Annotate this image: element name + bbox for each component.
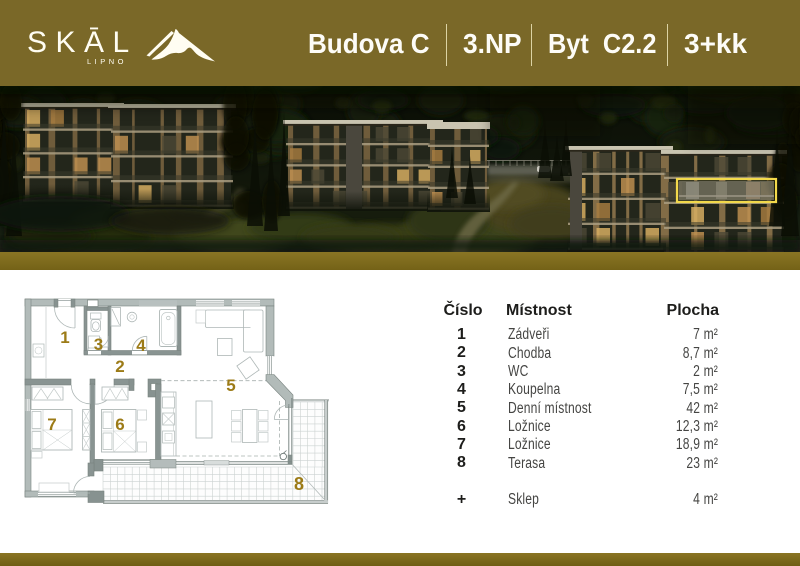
svg-text:4: 4 [136, 336, 146, 355]
svg-text:7: 7 [47, 415, 56, 434]
svg-text:6: 6 [115, 415, 124, 434]
svg-text:8: 8 [294, 474, 304, 494]
svg-text:3: 3 [94, 335, 103, 354]
svg-text:5: 5 [226, 376, 235, 395]
svg-text:1: 1 [60, 328, 69, 347]
svg-text:2: 2 [115, 357, 124, 376]
